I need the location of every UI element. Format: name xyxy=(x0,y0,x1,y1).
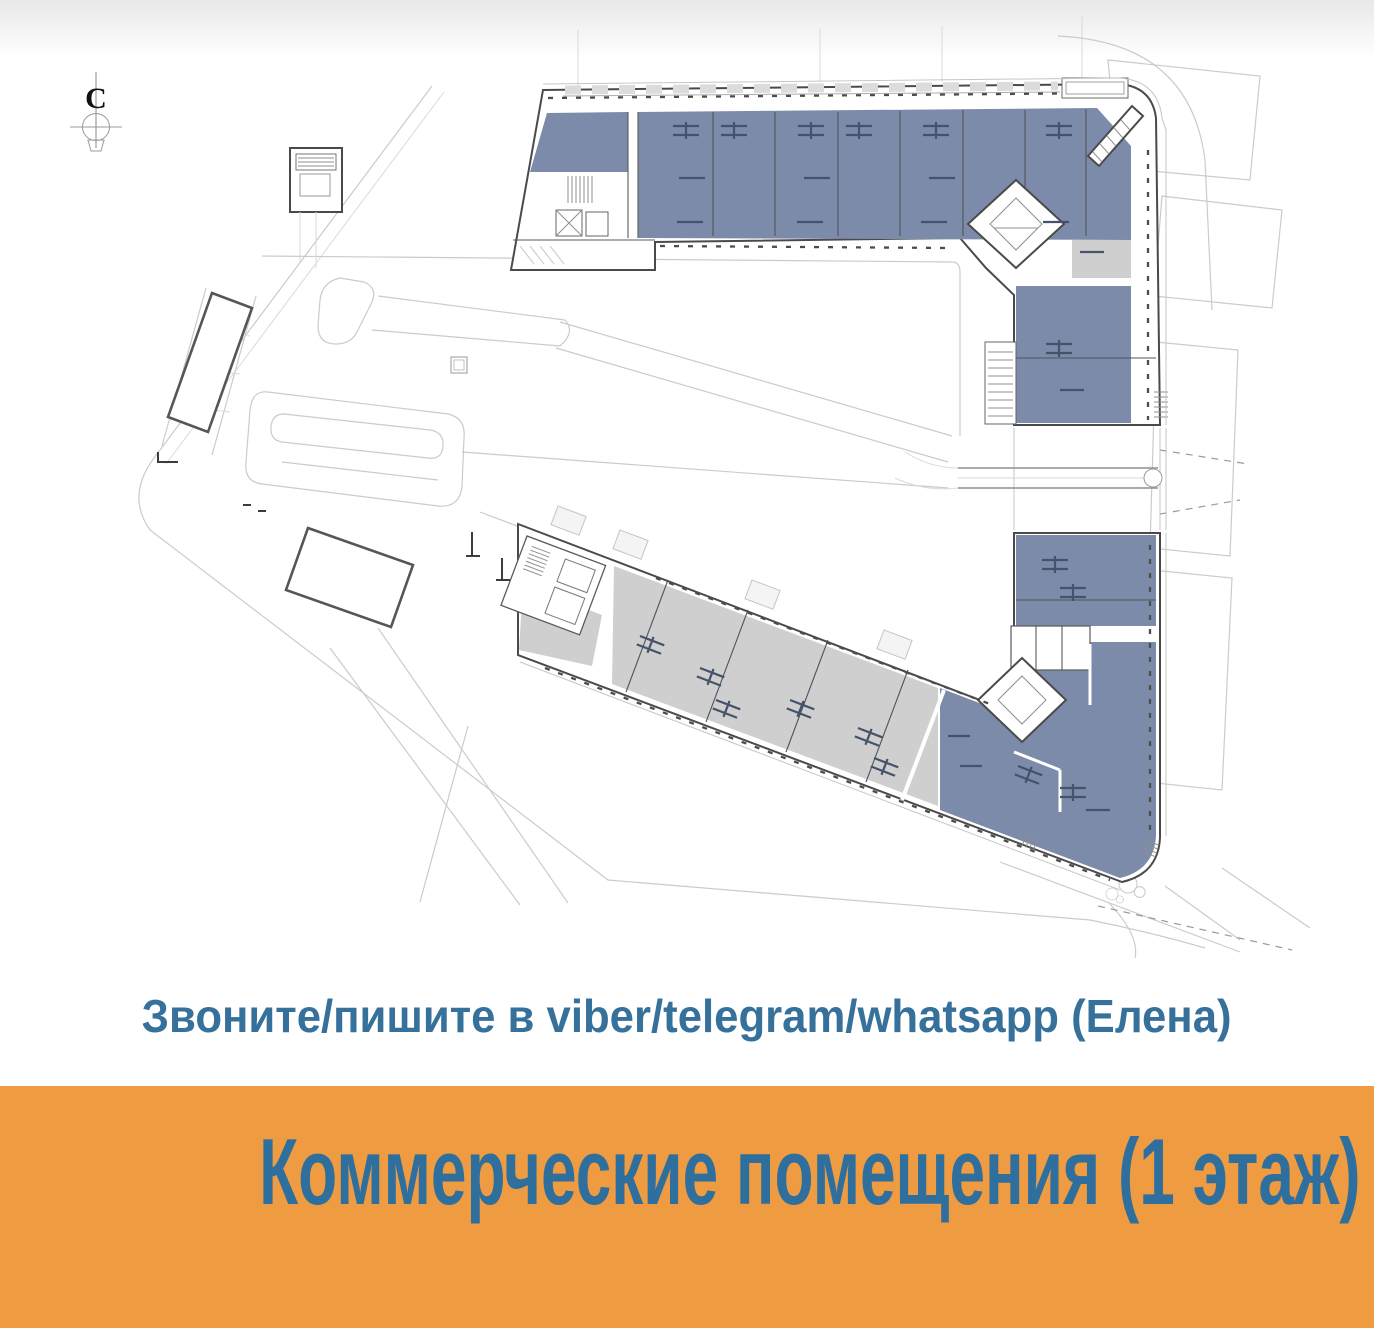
commercial-unit-blue xyxy=(1016,535,1156,626)
building-bottom-wing xyxy=(501,506,1166,890)
banner: Коммерческие помещения (1 этаж) xyxy=(0,1086,1374,1328)
technical-building xyxy=(290,148,342,268)
compass-label: С xyxy=(85,82,107,115)
unit-gray xyxy=(1072,240,1131,278)
page: С Звоните/пишите в viber/telegram/whatsa… xyxy=(0,0,1374,1328)
banner-title: Коммерческие помещения (1 этаж) xyxy=(259,1122,1360,1222)
compass: С xyxy=(70,72,122,151)
commercial-unit-blue xyxy=(530,112,628,172)
commercial-unit-blue xyxy=(1016,286,1131,423)
contact-text: Звоните/пишите в viber/telegram/whatsapp… xyxy=(142,984,1232,1048)
contact-line: Звоните/пишите в viber/telegram/whatsapp… xyxy=(0,984,1374,1048)
gateway-passage xyxy=(895,428,1166,530)
building-top-wing xyxy=(511,78,1168,425)
site-plan: С xyxy=(0,0,1374,962)
commercial-unit-blue xyxy=(940,642,1156,878)
sport-courts xyxy=(168,293,413,627)
